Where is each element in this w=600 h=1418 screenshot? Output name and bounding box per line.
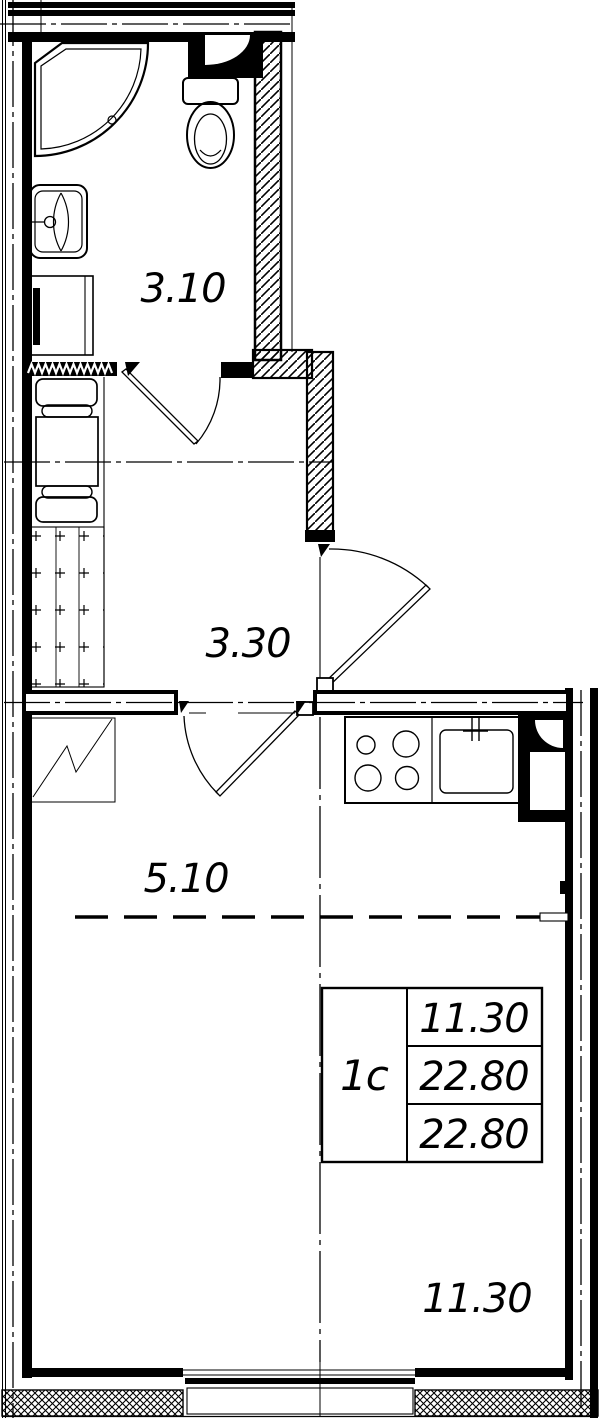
- masonry-pier-left: [2, 1390, 183, 1416]
- south-bearing-segment: [253, 350, 312, 378]
- entrance-door-swing-arc: [329, 549, 428, 587]
- shower-icon: [35, 43, 148, 156]
- living-room-door-leaf: [216, 711, 299, 796]
- hallway-area-label: 3.30: [205, 621, 290, 667]
- bathroom-door-swing-arc: [196, 377, 220, 444]
- area-value-overall: 22.80: [419, 1112, 529, 1158]
- entrance-door-hinge: [318, 544, 330, 557]
- bathroom-door: [122, 369, 220, 444]
- east-wall-joint-tick: [560, 881, 567, 894]
- bathroom: 3.10: [28, 32, 263, 355]
- door-jamb-wall: [221, 362, 253, 378]
- stove-icon: [355, 731, 419, 791]
- area-value-total: 22.80: [419, 1054, 529, 1100]
- bathroom-door-leaf: [122, 369, 198, 444]
- window-pier-bar-right: [415, 1368, 572, 1377]
- vanity-cabinet: [30, 276, 93, 355]
- vent-shaft-kitchen: [518, 713, 572, 822]
- wardrobe-dotted: [30, 527, 104, 687]
- hallway: 3.30: [4, 377, 333, 687]
- zone-divider-stub: [540, 913, 568, 921]
- toilet-icon: [183, 78, 238, 168]
- floor-plan-svg: 3.10: [0, 0, 600, 1418]
- vent-niche: [530, 752, 565, 810]
- window-pier-bar-left: [28, 1368, 183, 1377]
- bathroom-east-bearing-wall: [255, 32, 281, 360]
- living-room-area-label: 11.30: [422, 1276, 532, 1322]
- kitchen-living-area-label: 5.10: [143, 856, 228, 902]
- duct-zigzag-symbol: [33, 719, 112, 797]
- living-room-door: [184, 711, 299, 796]
- kitchen-counter: [345, 717, 520, 803]
- entrance-bearing-wall: [307, 352, 333, 532]
- entrance: [305, 352, 430, 691]
- masonry-pier-right: [415, 1390, 598, 1416]
- washer-dryer-stack: [36, 379, 98, 522]
- south-wall-window: [2, 1362, 598, 1417]
- window-frame-bar: [185, 1378, 415, 1384]
- entrance-door-jamb: [317, 678, 333, 691]
- vent-duct-box: [30, 718, 115, 802]
- living-partitions: [4, 692, 583, 796]
- area-value-living: 11.30: [419, 996, 529, 1042]
- top-wall-inner-bar: [8, 10, 295, 16]
- floor-plan: 3.10: [0, 0, 600, 1418]
- entrance-wall-cap: [305, 530, 335, 542]
- east-wall-outer-face: [590, 688, 598, 1418]
- top-wall-outer-bar: [8, 2, 295, 8]
- bathroom-south-wall: [24, 350, 312, 444]
- apartment-type-cell: 1c: [340, 1051, 389, 1100]
- living-room-door-swing-arc: [184, 716, 218, 794]
- window-sill: [187, 1388, 413, 1414]
- entrance-door-leaf: [323, 585, 430, 688]
- bathroom-door-hinge: [125, 362, 140, 376]
- sink-icon: [28, 185, 87, 258]
- kitchen-sink-icon: [440, 717, 513, 793]
- info-table: 1c 11.30 22.80 22.80: [322, 988, 542, 1162]
- bathroom-area-label: 3.10: [140, 266, 225, 312]
- vent-shaft-bathroom: [188, 32, 263, 78]
